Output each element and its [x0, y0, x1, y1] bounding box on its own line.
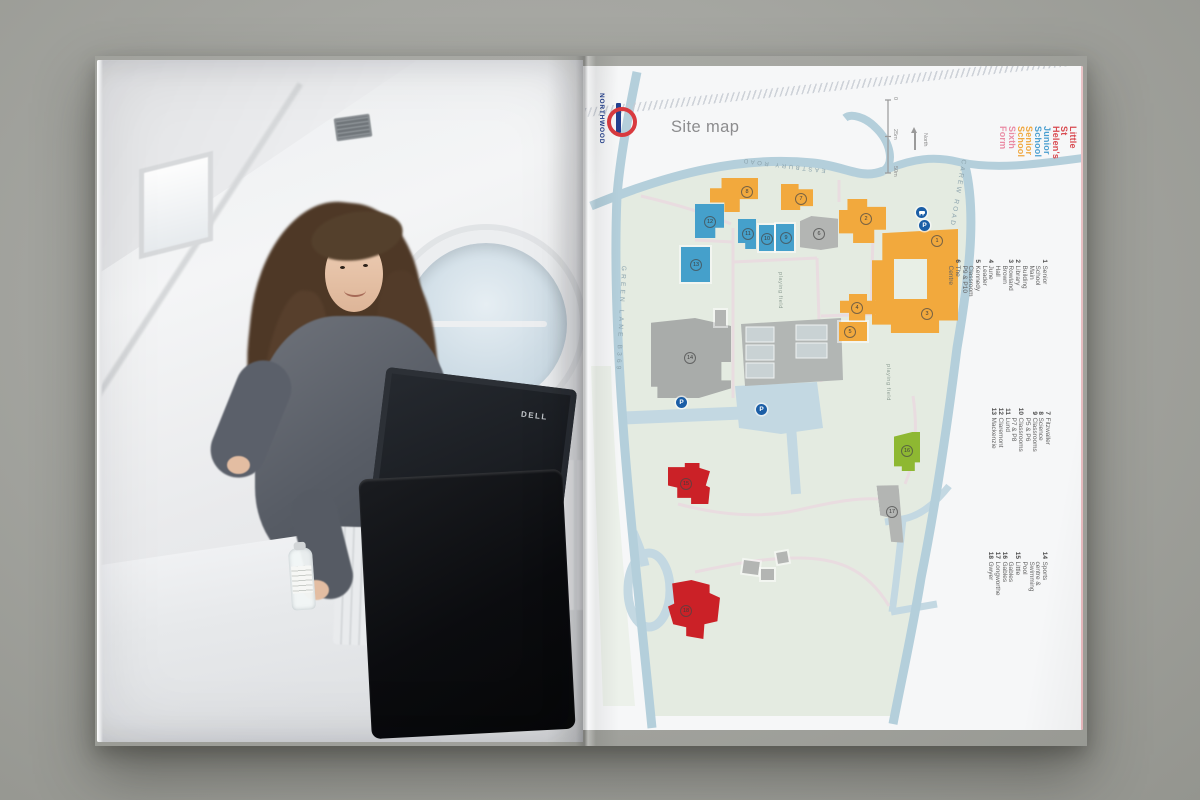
building-number: 8: [741, 186, 753, 198]
building-number: 17: [886, 506, 898, 518]
monitor-brand-logo: DELL: [521, 410, 549, 422]
building-number: 11: [742, 228, 754, 240]
building-number: 7: [795, 193, 807, 205]
building-number: 16: [901, 445, 913, 457]
student-eye-right: [363, 264, 368, 267]
building-number: 12: [704, 216, 716, 228]
student-smile: [344, 284, 366, 297]
bus-stop-icon: [916, 207, 927, 218]
building-number: 13: [690, 259, 702, 271]
building-number: 6: [813, 228, 825, 240]
building-number: 5: [844, 326, 856, 338]
parking-icon: P: [919, 220, 930, 231]
skylight-window: [139, 151, 213, 259]
building-number: 2: [860, 213, 872, 225]
ceiling-vent: [334, 114, 373, 142]
building-number: 14: [684, 352, 696, 364]
right-page: NORTHWOOD Site map 0 25m 50m North EASTB…: [583, 66, 1083, 730]
computer-monitor-foreground: [358, 469, 575, 739]
building-number: 1: [931, 235, 943, 247]
bus-wheels: [919, 214, 924, 215]
building-number: 18: [680, 605, 692, 617]
building-number: 15: [680, 478, 692, 490]
left-page: DELL: [97, 60, 583, 742]
parking-icon: P: [756, 404, 767, 415]
bottle-label: [291, 565, 313, 593]
page-stack-edge: [97, 60, 103, 742]
fore-edge: [1081, 66, 1083, 730]
building-number: 10: [761, 233, 773, 245]
bottle-cap: [293, 542, 306, 551]
scale-bar: [583, 66, 1083, 730]
photo-student: DELL: [97, 60, 583, 742]
building-number: 4: [851, 302, 863, 314]
brochure: DELL: [95, 56, 1087, 746]
student-hand-left: [227, 456, 250, 474]
building-number: 9: [780, 232, 792, 244]
water-bottle: [288, 547, 316, 611]
site-map: NORTHWOOD Site map 0 25m 50m North EASTB…: [583, 66, 1083, 730]
parking-icon: P: [676, 397, 687, 408]
student-eye-left: [340, 266, 345, 269]
building-number: 3: [921, 308, 933, 320]
